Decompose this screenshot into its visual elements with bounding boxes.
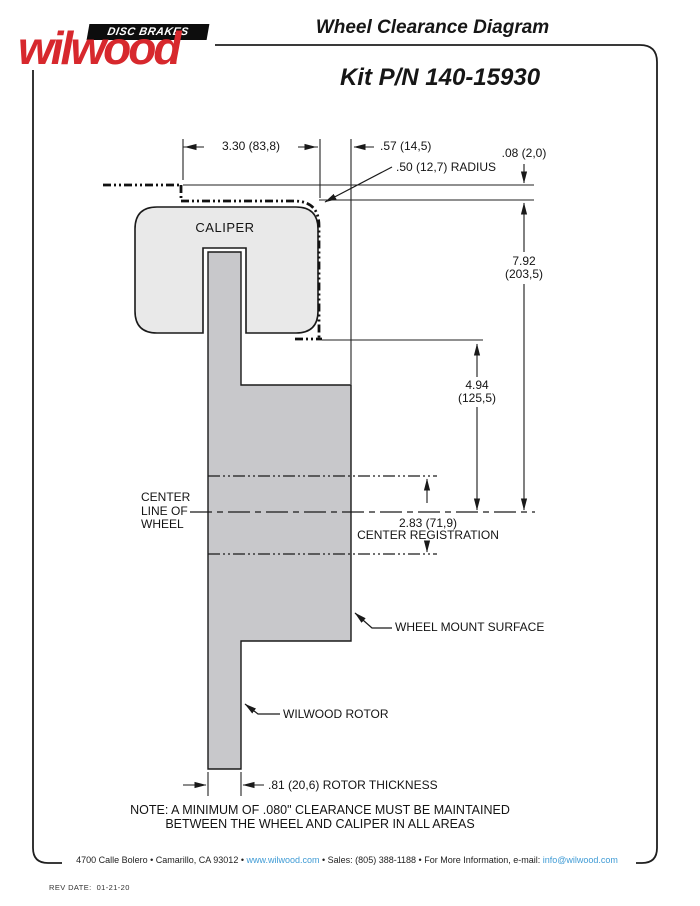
centerline-of-wheel-label: CENTER LINE OF WHEEL [141, 491, 190, 532]
footer-website-link[interactable]: www.wilwood.com [246, 855, 319, 865]
dim-rotor-thickness: .81 (20,6) ROTOR THICKNESS [268, 779, 438, 793]
wheel-clearance-datasheet: DISC BRAKES wilwood Wheel Clearance Diag… [0, 0, 700, 906]
footer-address-part2: • Sales: (805) 388-1188 • For More Infor… [320, 855, 543, 865]
dim-envelope-height: 4.94 (125,5) [449, 379, 505, 405]
dim-center-registration: 2.83 (71,9) CENTER REGISTRATION [352, 517, 504, 541]
frame-border-left [33, 70, 62, 863]
caliper-label: CALIPER [183, 221, 267, 235]
rev-date: REV DATE: 01-21-20 [49, 883, 130, 892]
dim-caliper-face-to-mount: .57 (14,5) [380, 140, 431, 154]
dim-corner-radius: .50 (12,7) RADIUS [396, 161, 496, 175]
footer-address-line: 4700 Calle Bolero • Camarillo, CA 93012 … [36, 855, 658, 865]
diagram-linework [0, 0, 700, 906]
clearance-note: NOTE: A MINIMUM OF .080" CLEARANCE MUST … [80, 804, 560, 831]
wheel-mount-surface-label: WHEEL MOUNT SURFACE [395, 621, 544, 635]
dim-wheel-to-caliper-gap: .08 (2,0) [496, 147, 552, 161]
footer-address-part1: 4700 Calle Bolero • Camarillo, CA 93012 … [76, 855, 246, 865]
kit-part-number: Kit P/N 140-15930 [215, 64, 665, 92]
page-title: Wheel Clearance Diagram [205, 17, 660, 39]
wilwood-logo: wilwood [18, 26, 178, 70]
footer-email-link[interactable]: info@wilwood.com [543, 855, 618, 865]
dim-caliper-width: 3.30 (83,8) [204, 140, 298, 154]
dim-mount-top-height: 7.92 (203,5) [496, 255, 552, 281]
wilwood-rotor-label: WILWOOD ROTOR [283, 708, 389, 722]
